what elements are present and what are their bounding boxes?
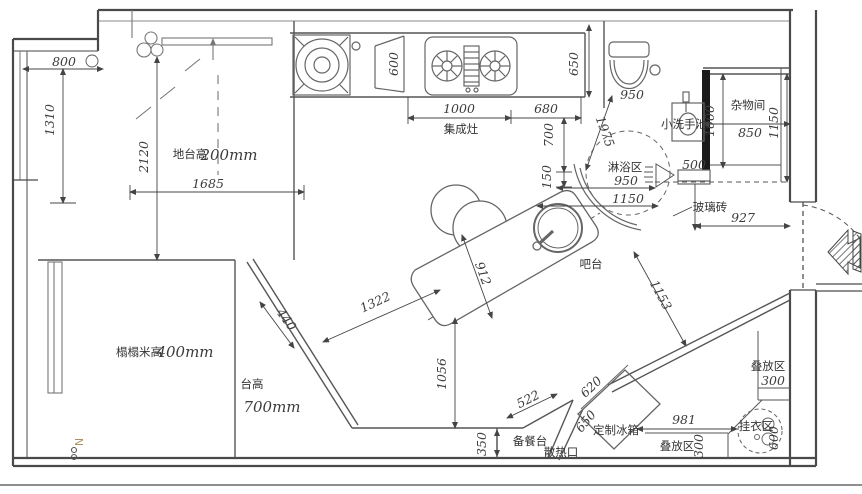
left-wardrobe [48, 262, 62, 393]
stove-label: 集成灶 [444, 122, 479, 136]
dim-1150-shower: 1150 [612, 191, 644, 206]
dim-950-shower: 950 [614, 173, 638, 188]
dim-680: 680 [534, 101, 558, 116]
dim-1150-storage: 1150 [766, 107, 781, 139]
entry-bar-icon [853, 231, 861, 272]
vent-label: 散热口 [544, 445, 579, 459]
glass-brick-label: 玻璃砖 [693, 200, 728, 214]
gas-stove [425, 37, 517, 95]
corner-pipes [137, 32, 163, 57]
prep-label: 备餐台 [513, 434, 548, 448]
dim-300-lower: 300 [691, 434, 706, 458]
dim-600-hang: 600 [766, 426, 781, 450]
outer-walls [0, 10, 862, 485]
basin-label: 小洗手池 [661, 117, 707, 131]
counter-height: 700mm [243, 398, 300, 416]
tatami-label: 榻榻米高 [116, 345, 162, 359]
dim-2120: 2120 [136, 141, 151, 174]
dim-600-cabinet: 600 [386, 52, 401, 76]
dim-1000-stove: 1000 [443, 101, 475, 116]
floor-plan-canvas: 800 1310 2120 1685 地台高 200mm 600 1000 68… [0, 0, 862, 494]
entry-door [803, 202, 861, 290]
dim-620: 620 [577, 373, 605, 400]
dim-1685: 1685 [192, 176, 224, 191]
floor-plan-svg: 800 1310 2120 1685 地台高 200mm 600 1000 68… [0, 0, 862, 494]
dim-1000-storage: 1000 [702, 105, 717, 137]
dim-800: 800 [52, 54, 76, 69]
stack-upper-label: 叠放区 [751, 359, 786, 373]
stack-lower-label: 叠放区 [660, 439, 695, 453]
kitchen-fixtures [293, 35, 517, 95]
dim-150: 150 [539, 165, 554, 189]
platform-height: 200mm [199, 146, 257, 164]
counter-label: 台高 [241, 377, 264, 391]
shower-label: 淋浴区 [608, 160, 643, 174]
tatami-height: 400mm [155, 343, 213, 361]
dim-1310: 1310 [42, 104, 57, 136]
dim-1153: 1153 [647, 277, 675, 312]
dim-950-toilet: 950 [620, 87, 644, 102]
dim-850: 850 [738, 125, 762, 140]
dim-650-kitchen: 650 [566, 52, 581, 76]
dim-1056: 1056 [434, 358, 449, 390]
dim-981: 981 [672, 412, 696, 427]
washing-machine [293, 35, 360, 95]
partition-walls [38, 21, 790, 460]
top-track [162, 38, 272, 45]
dim-500: 500 [682, 157, 706, 172]
platform-details [48, 10, 272, 460]
storage-label: 杂物间 [731, 98, 766, 112]
bar-label: 吧台 [580, 257, 603, 271]
toilet [609, 42, 660, 89]
dim-700: 700 [541, 123, 556, 147]
dim-927: 927 [731, 210, 755, 225]
dim-1975: 1975 [593, 114, 618, 149]
dim-1322: 1322 [358, 288, 393, 315]
fridge-label: 定制冰箱 [593, 423, 639, 437]
dim-350: 350 [474, 432, 489, 456]
dim-300-upper: 300 [761, 373, 785, 388]
text-labels: 800 1310 2120 1685 地台高 200mm 600 1000 68… [42, 52, 785, 459]
dimension-lines [23, 25, 790, 456]
north-label: N [72, 438, 85, 446]
